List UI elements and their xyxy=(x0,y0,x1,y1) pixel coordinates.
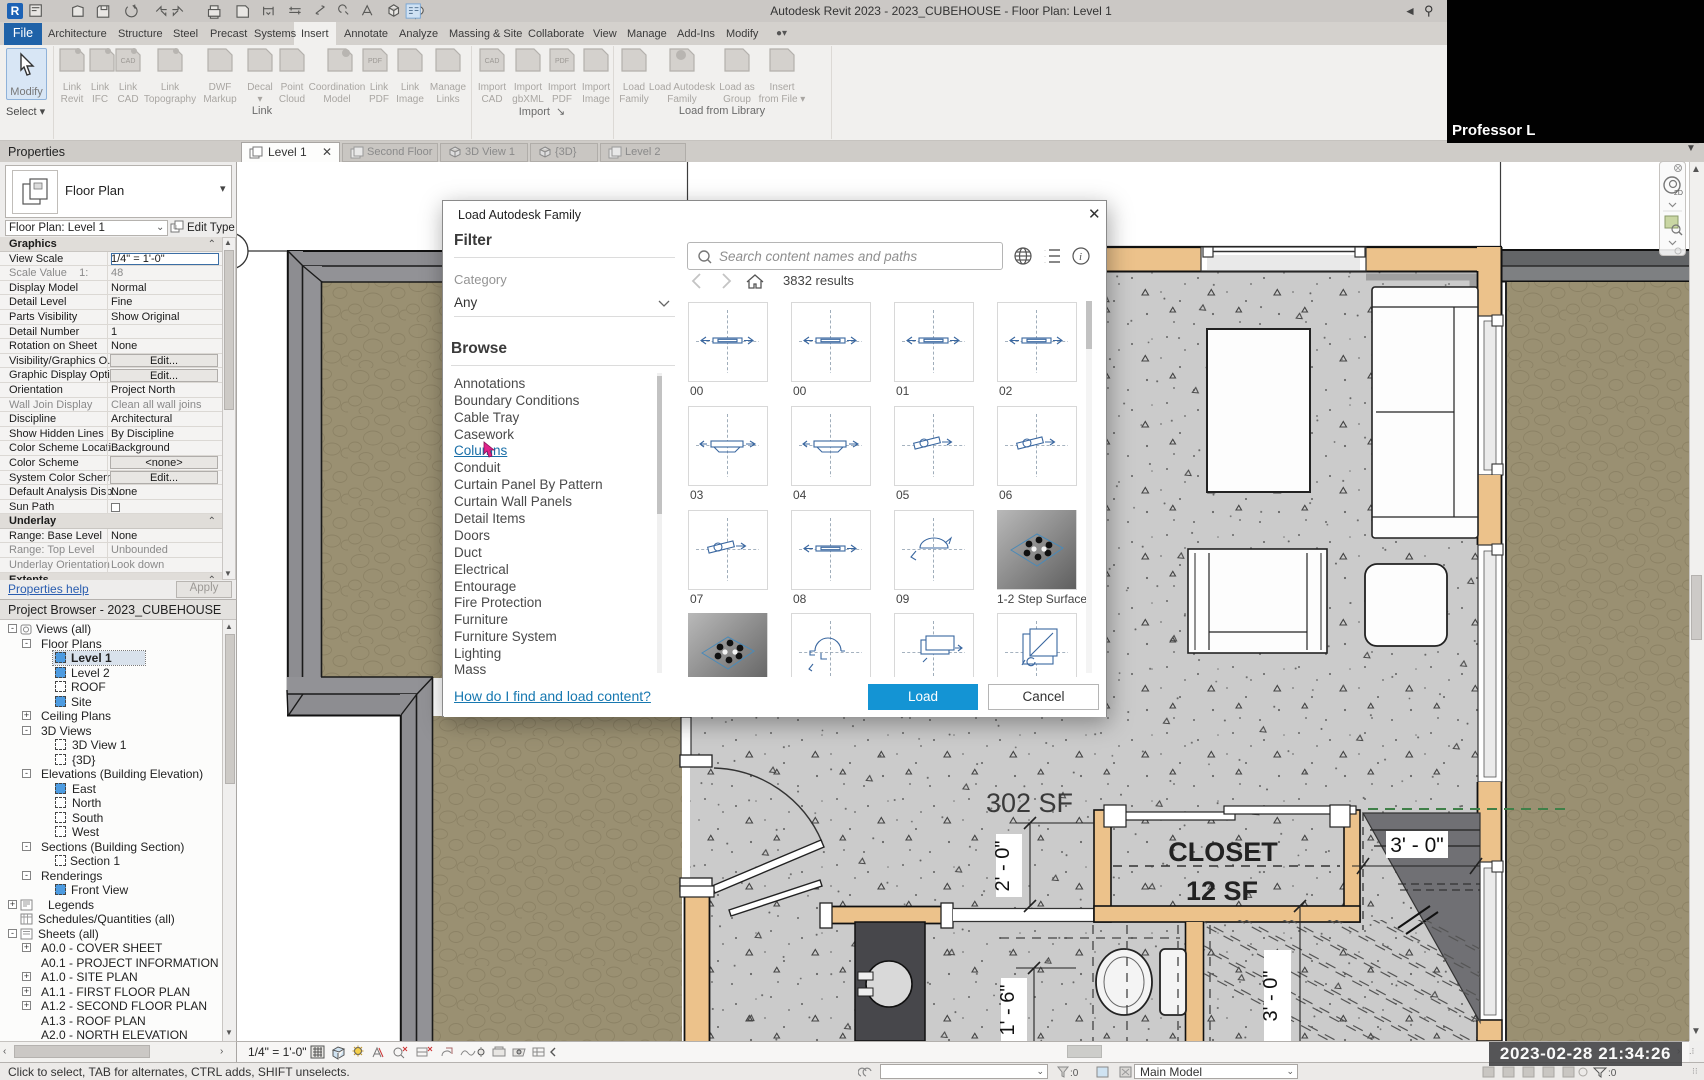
svg-text:00: 00 xyxy=(793,384,807,398)
svg-text:00: 00 xyxy=(690,384,704,398)
svg-text:12 SF: 12 SF xyxy=(1186,876,1258,906)
svg-text:PDF: PDF xyxy=(552,94,572,105)
svg-text:CAD: CAD xyxy=(485,58,500,65)
svg-text:PDF: PDF xyxy=(369,94,389,105)
svg-text:Markup: Markup xyxy=(203,94,237,105)
svg-text:Link: Link xyxy=(370,82,389,93)
svg-text:Links: Links xyxy=(436,94,459,105)
svg-text:06: 06 xyxy=(999,488,1013,502)
svg-text::0: :0 xyxy=(1608,1068,1617,1079)
svg-text:3' - 0": 3' - 0" xyxy=(1390,834,1443,857)
svg-text:i: i xyxy=(1079,251,1082,263)
svg-text:CAD: CAD xyxy=(121,58,136,65)
svg-text:CAD: CAD xyxy=(117,94,138,105)
svg-text:Insert: Insert xyxy=(769,82,794,93)
svg-text:gbXML: gbXML xyxy=(512,94,544,105)
svg-text:Manage: Manage xyxy=(430,82,467,93)
svg-text:Import: Import xyxy=(514,82,543,93)
svg-text:Cloud: Cloud xyxy=(279,94,305,105)
svg-text:Import: Import xyxy=(548,82,577,93)
svg-text:▾: ▾ xyxy=(257,94,262,105)
svg-text:1-2 Step Surface: 1-2 Step Surface xyxy=(997,592,1087,606)
svg-text:Import: Import xyxy=(478,82,507,93)
svg-text:Image: Image xyxy=(582,94,610,105)
svg-text:CLOSET: CLOSET xyxy=(1168,837,1278,867)
svg-text:09: 09 xyxy=(896,592,910,606)
svg-text:Coordination: Coordination xyxy=(309,82,366,93)
svg-text:2D: 2D xyxy=(1674,190,1683,197)
svg-text:IFC: IFC xyxy=(92,94,108,105)
svg-text:PDF: PDF xyxy=(555,58,569,65)
svg-text:Link: Link xyxy=(161,82,180,93)
svg-text:Point: Point xyxy=(281,82,304,93)
svg-text:3' - 0": 3' - 0" xyxy=(1260,971,1282,1022)
svg-text:CAD: CAD xyxy=(481,94,502,105)
svg-text:302 SF: 302 SF xyxy=(986,788,1073,818)
svg-text:Link: Link xyxy=(401,82,420,93)
svg-text:Topography: Topography xyxy=(144,94,196,105)
svg-text:Family: Family xyxy=(619,94,648,105)
svg-text:Model: Model xyxy=(323,94,350,105)
svg-text:Load Autodesk: Load Autodesk xyxy=(649,82,716,93)
svg-text:Family: Family xyxy=(667,94,696,105)
svg-text:02: 02 xyxy=(999,384,1013,398)
svg-text:PDF: PDF xyxy=(368,58,382,65)
svg-text:03: 03 xyxy=(690,488,704,502)
svg-text:Image: Image xyxy=(396,94,424,105)
svg-text:Link: Link xyxy=(63,82,82,93)
svg-text:Load as: Load as xyxy=(719,82,755,93)
svg-text:Import: Import xyxy=(582,82,611,93)
svg-text:Link: Link xyxy=(119,82,138,93)
svg-text:Decal: Decal xyxy=(247,82,273,93)
svg-text:Revit: Revit xyxy=(61,94,84,105)
svg-text:1' - 6": 1' - 6" xyxy=(997,985,1019,1036)
svg-text:Group: Group xyxy=(723,94,751,105)
svg-text:Link: Link xyxy=(91,82,110,93)
svg-text::0: :0 xyxy=(1070,1068,1079,1079)
svg-text:from File ▾: from File ▾ xyxy=(759,94,806,105)
svg-text:05: 05 xyxy=(896,488,910,502)
svg-text:01: 01 xyxy=(896,384,910,398)
svg-text:Load: Load xyxy=(623,82,645,93)
svg-text:08: 08 xyxy=(793,592,807,606)
svg-text:2' - 0": 2' - 0" xyxy=(992,841,1014,892)
svg-text:DWF: DWF xyxy=(209,82,232,93)
svg-text:04: 04 xyxy=(793,488,807,502)
svg-text:07: 07 xyxy=(690,592,704,606)
